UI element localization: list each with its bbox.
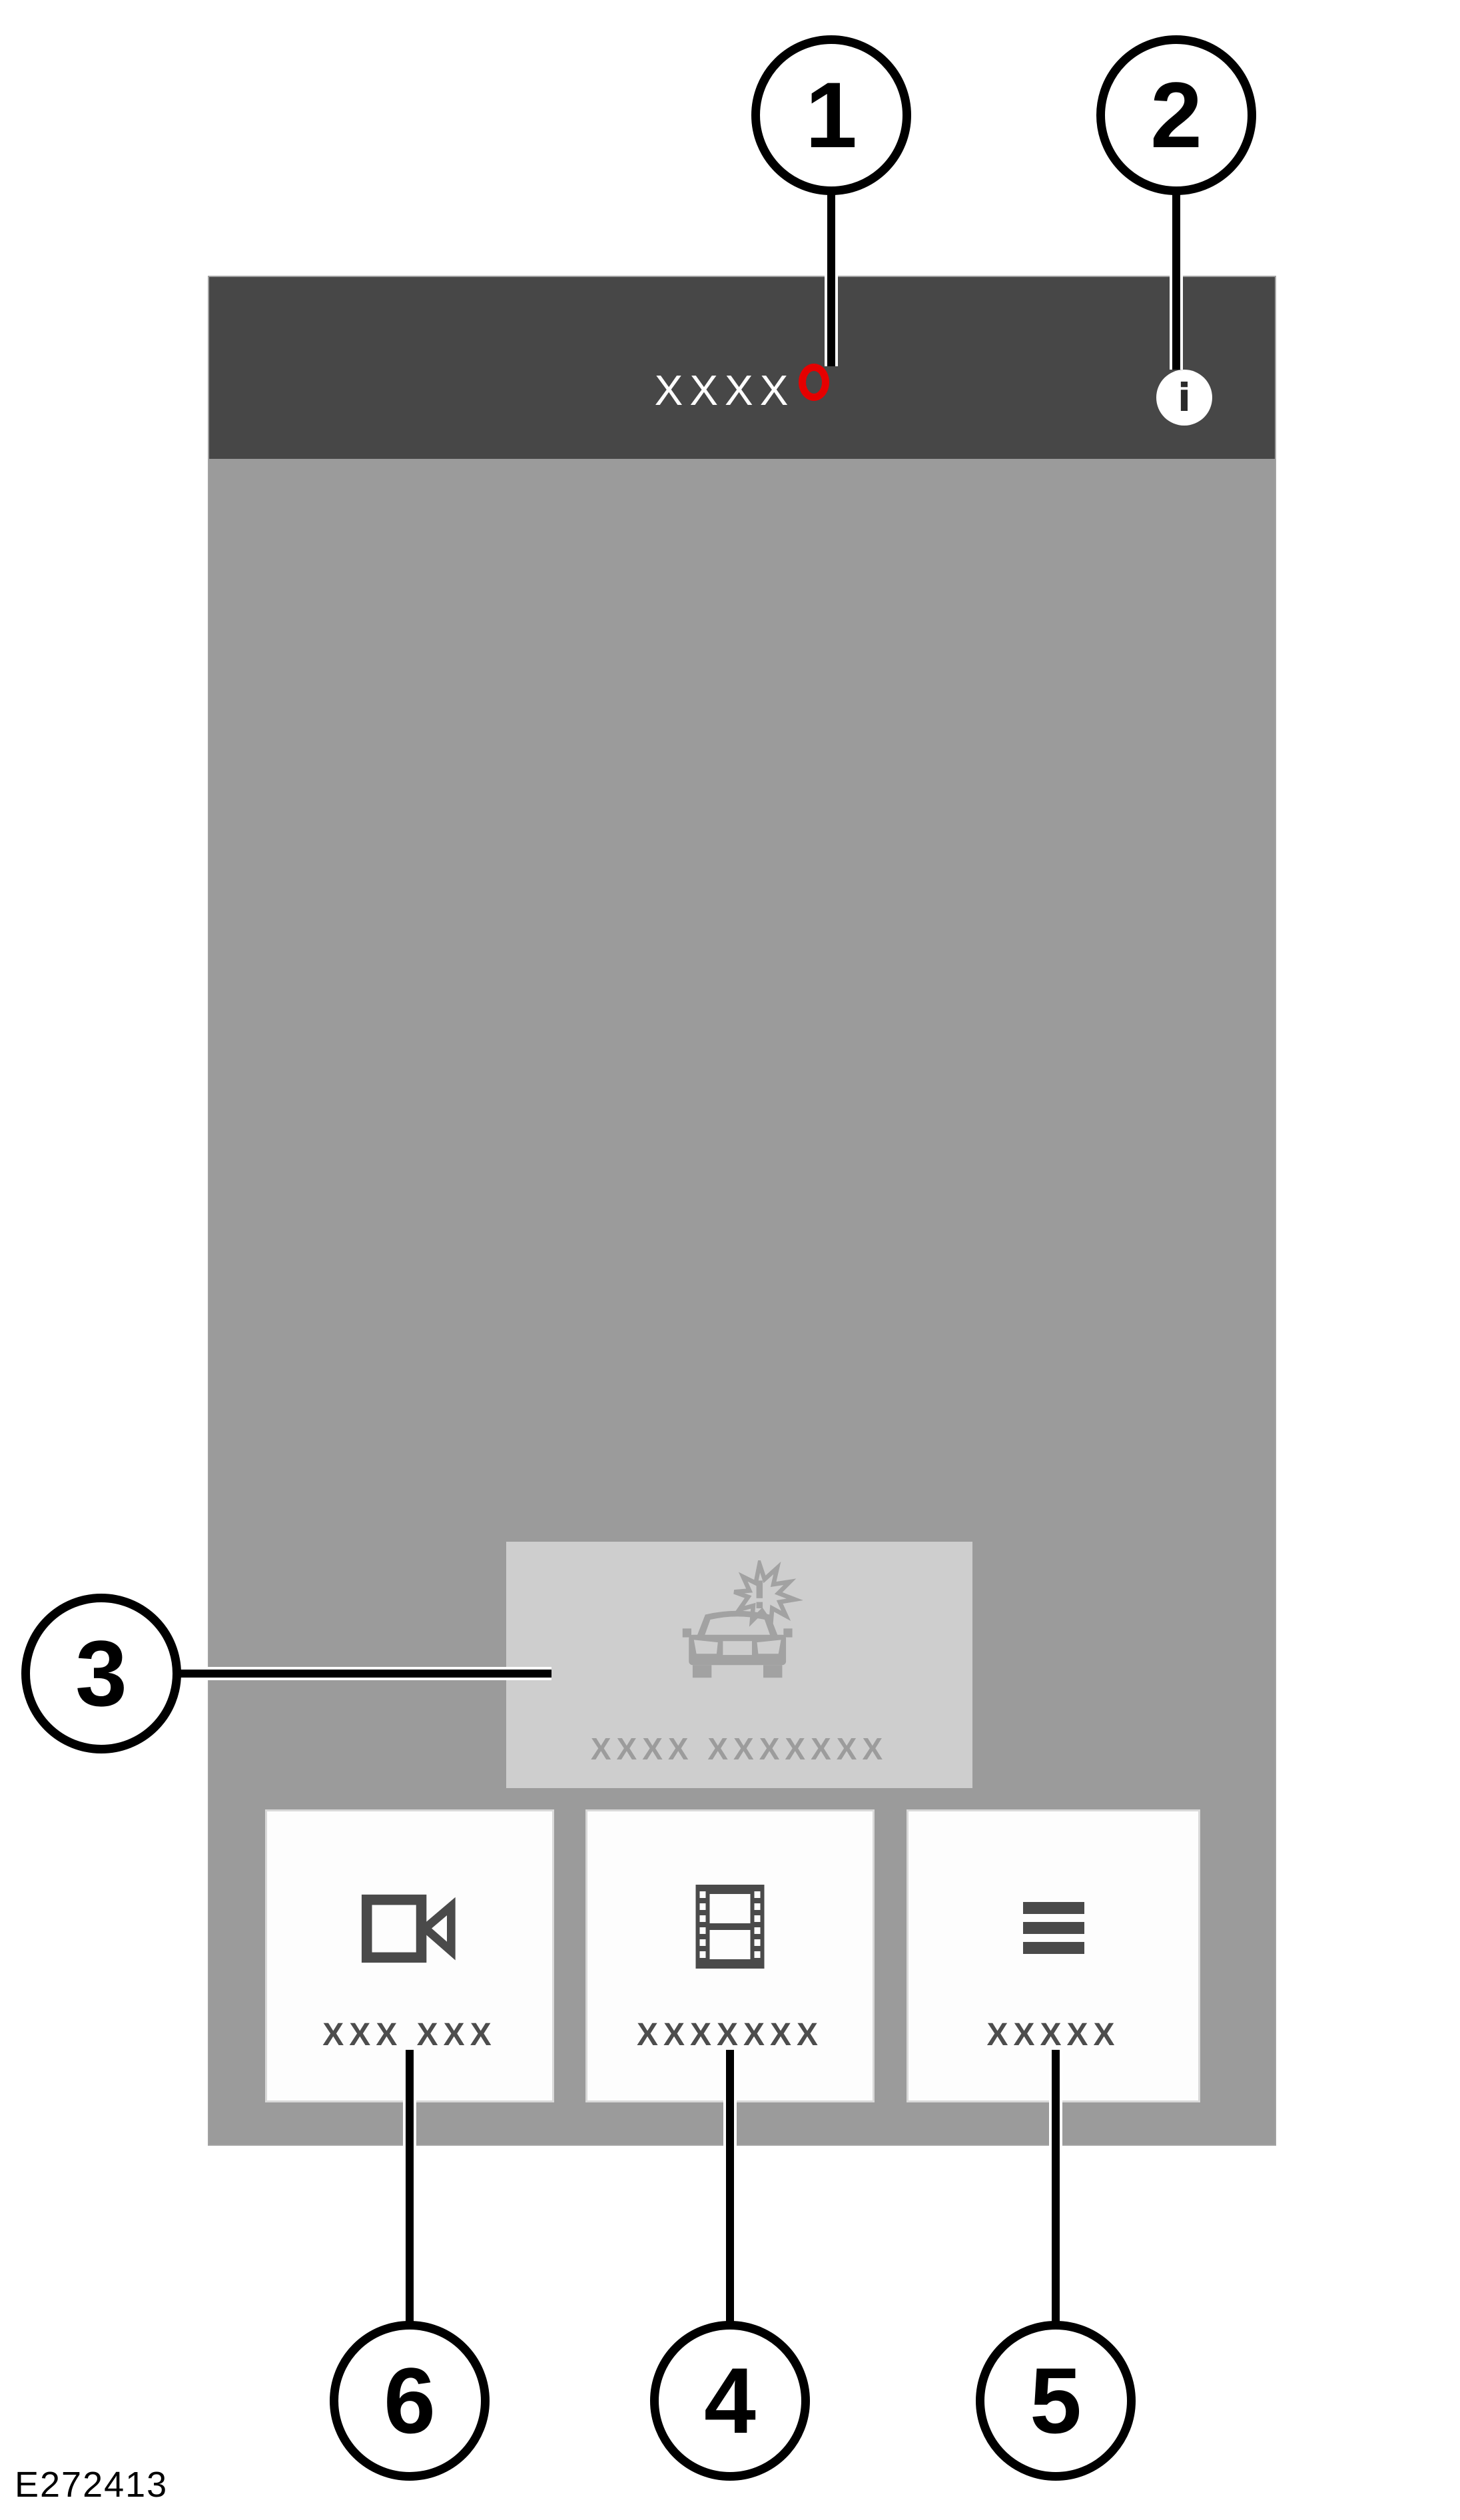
callout-1-number: 1 xyxy=(805,69,857,162)
event-record-button[interactable]: XXXX XXXXXXX xyxy=(506,1542,972,1788)
callout-4-line xyxy=(723,2050,737,2324)
figure-code: E272413 xyxy=(15,2464,168,2505)
phone-screen: XXXX i xyxy=(208,276,1276,2146)
callout-5-number: 5 xyxy=(1030,2354,1082,2447)
callout-6-number: 6 xyxy=(384,2354,436,2447)
recordings-label: XXXXXXX xyxy=(587,2019,873,2051)
callout-4-circle: 4 xyxy=(650,2321,810,2481)
menu-icon xyxy=(1023,1902,1084,1957)
callout-6-circle: 6 xyxy=(330,2321,490,2481)
callout-3-line xyxy=(175,1667,551,1680)
app-title: XXXX xyxy=(655,369,795,412)
callout-2-line xyxy=(1170,192,1183,370)
app-header: XXXX i xyxy=(209,277,1275,459)
info-button[interactable]: i xyxy=(1156,370,1212,426)
callout-5-line xyxy=(1049,2050,1062,2324)
callout-6-line xyxy=(403,2050,416,2324)
callout-3-circle: 3 xyxy=(21,1594,181,1753)
record-video-label: XXX XXX xyxy=(267,2019,552,2051)
video-camera-icon xyxy=(360,1891,460,1969)
callout-3-number: 3 xyxy=(75,1627,127,1720)
menu-label: XXXXX xyxy=(909,2019,1198,2051)
car-collision-icon xyxy=(663,1560,816,1684)
film-strip-icon xyxy=(696,1885,765,1972)
callout-1-circle: 1 xyxy=(751,35,911,195)
callout-1-line xyxy=(825,192,838,366)
header-title-row: XXXX xyxy=(209,369,1275,412)
callout-4-number: 4 xyxy=(704,2354,756,2447)
info-icon: i xyxy=(1178,378,1191,417)
event-button-label: XXXX XXXXXXX xyxy=(506,1733,972,1764)
record-indicator-icon xyxy=(799,364,829,401)
callout-2-number: 2 xyxy=(1150,69,1202,162)
callout-5-circle: 5 xyxy=(976,2321,1136,2481)
callout-2-circle: 2 xyxy=(1096,35,1256,195)
manual-figure: XXXX i xyxy=(0,0,1460,2520)
